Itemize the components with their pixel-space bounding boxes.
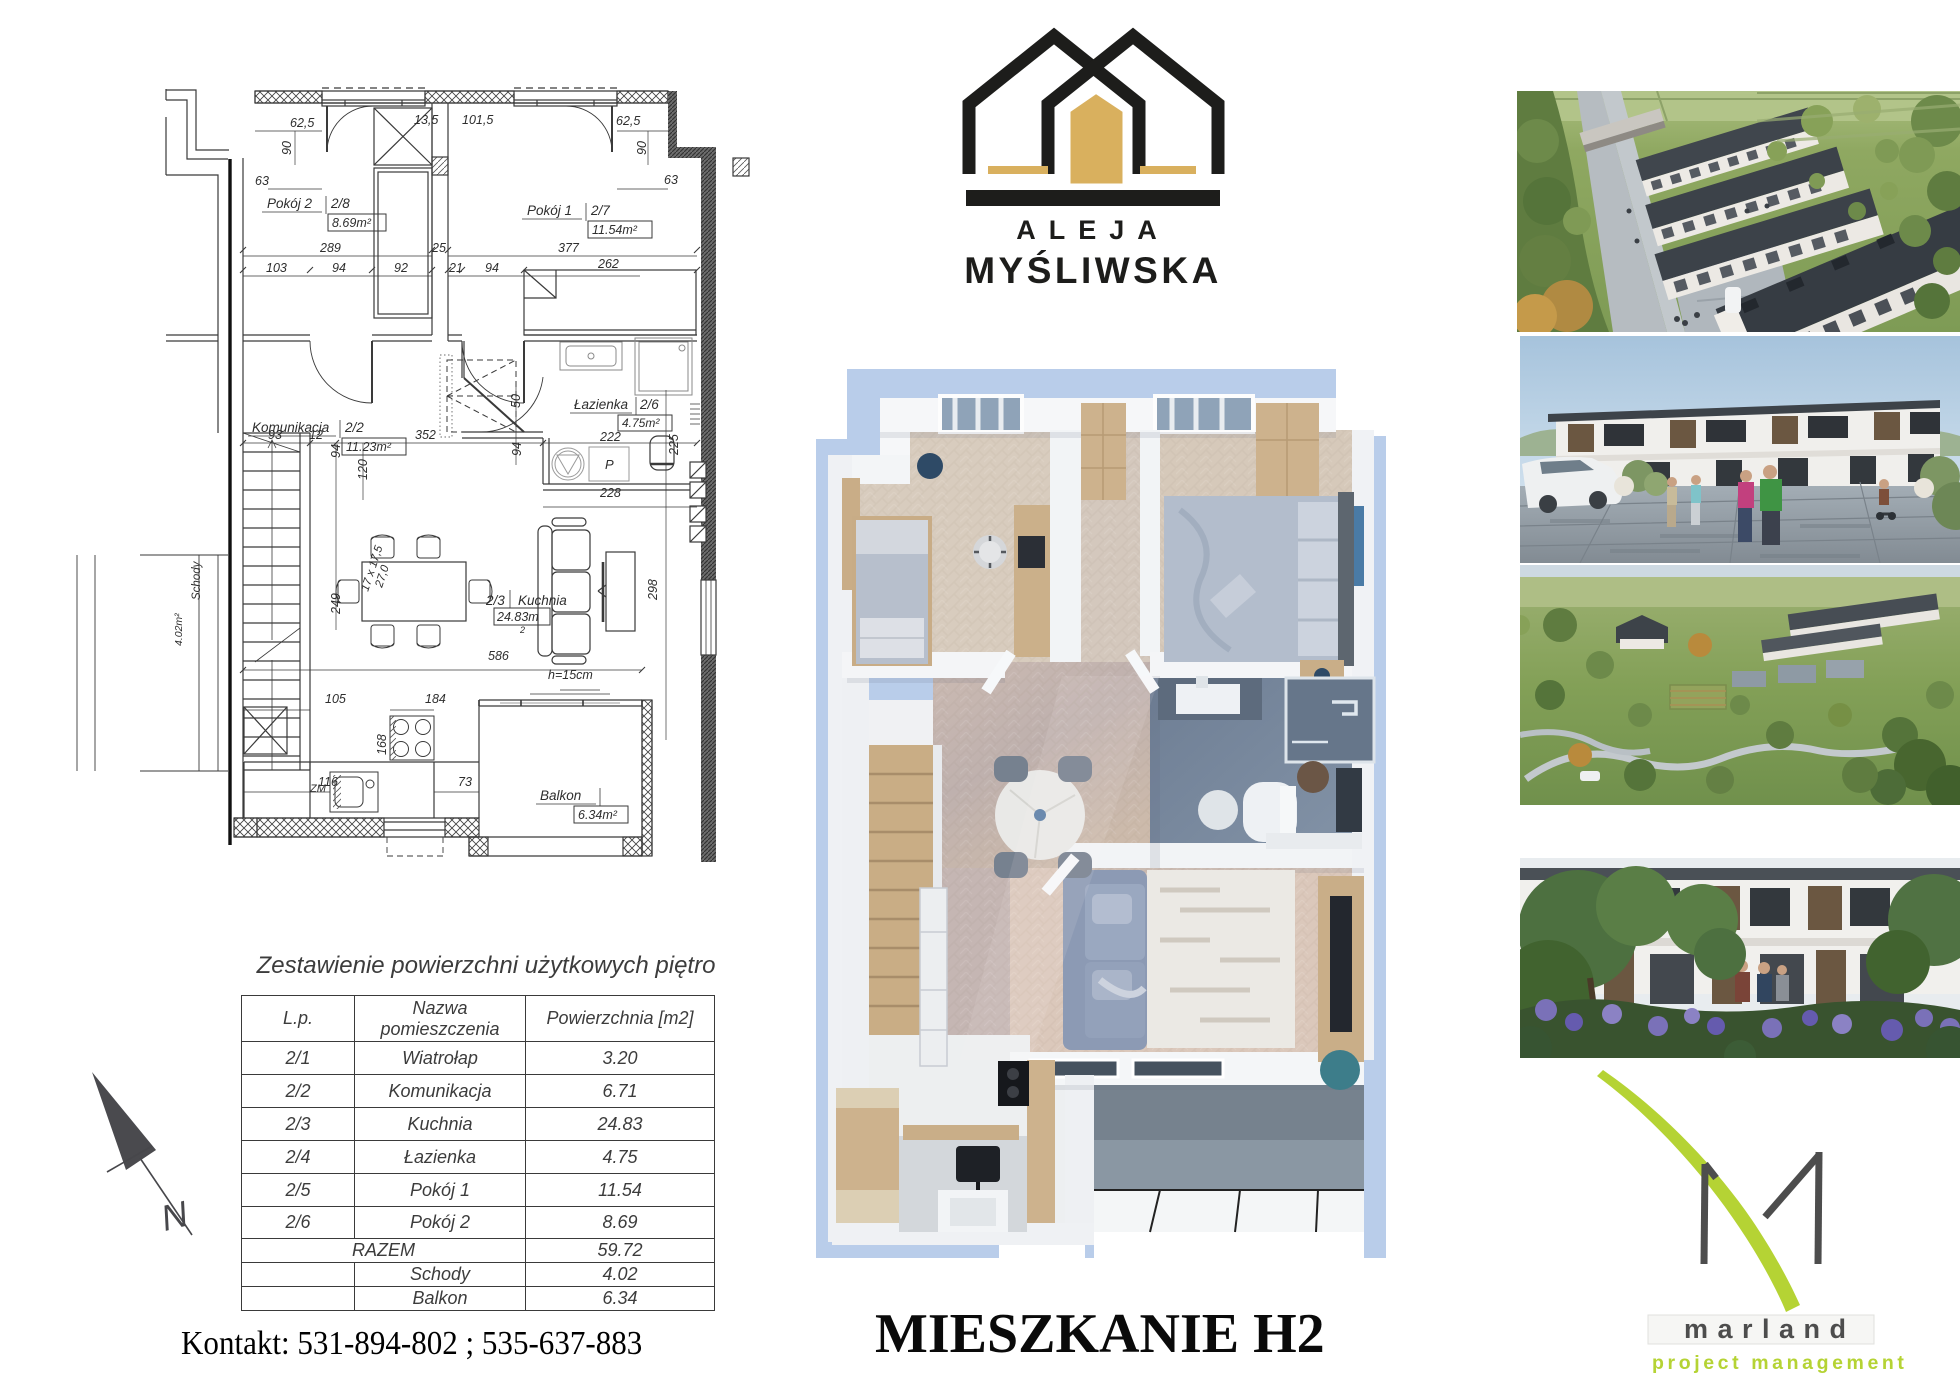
svg-text:225: 225	[667, 434, 681, 456]
svg-text:94: 94	[329, 444, 343, 458]
svg-text:262: 262	[597, 257, 619, 271]
svg-text:168: 168	[375, 734, 389, 755]
svg-text:2/3: 2/3	[485, 593, 505, 608]
svg-text:90: 90	[280, 141, 294, 155]
svg-text:MYŚLIWSKA: MYŚLIWSKA	[964, 249, 1222, 291]
svg-text:249: 249	[329, 593, 343, 615]
svg-text:94: 94	[510, 442, 524, 456]
svg-text:11.23m²: 11.23m²	[346, 440, 392, 454]
svg-text:2/6: 2/6	[639, 397, 659, 412]
svg-text:377: 377	[558, 241, 580, 255]
svg-text:2: 2	[519, 625, 525, 635]
svg-text:103: 103	[266, 261, 287, 275]
svg-text:4.75m²: 4.75m²	[622, 416, 660, 430]
svg-text:2/2: 2/2	[344, 420, 364, 435]
svg-text:4.02m²: 4.02m²	[173, 613, 185, 646]
svg-text:352: 352	[415, 428, 436, 442]
svg-text:11.54m²: 11.54m²	[592, 223, 638, 237]
svg-text:Kuchnia: Kuchnia	[518, 593, 567, 608]
svg-text:ALEJA: ALEJA	[1016, 215, 1170, 245]
svg-text:Komunikacja: Komunikacja	[252, 420, 330, 435]
svg-text:94: 94	[485, 261, 499, 275]
svg-text:184: 184	[425, 692, 446, 706]
svg-text:Pokój 1: Pokój 1	[527, 203, 572, 218]
svg-text:24.83m: 24.83m	[496, 610, 539, 624]
svg-text:Pokój 2: Pokój 2	[267, 196, 313, 211]
svg-text:101,5: 101,5	[462, 113, 493, 127]
svg-text:228: 228	[599, 486, 621, 500]
svg-text:Balkon: Balkon	[540, 788, 581, 803]
svg-text:P: P	[605, 457, 614, 472]
svg-text:project management: project management	[1652, 1352, 1908, 1374]
svg-text:586: 586	[488, 649, 509, 663]
svg-text:ZM: ZM	[309, 783, 327, 795]
svg-text:8.69m²: 8.69m²	[332, 216, 372, 230]
svg-text:Schody: Schody	[191, 560, 203, 600]
svg-text:marland: marland	[1684, 1314, 1856, 1344]
svg-text:h=15cm: h=15cm	[548, 668, 593, 682]
svg-text:289: 289	[319, 241, 341, 255]
svg-text:62,5: 62,5	[616, 114, 640, 128]
svg-text:90: 90	[635, 141, 649, 155]
svg-text:13,5: 13,5	[414, 113, 438, 127]
svg-text:63: 63	[664, 173, 678, 187]
svg-text:105: 105	[325, 692, 346, 706]
svg-text:50: 50	[509, 394, 523, 408]
svg-text:298: 298	[646, 579, 660, 601]
svg-text:2/8: 2/8	[330, 196, 350, 211]
svg-text:62,5: 62,5	[290, 116, 314, 130]
svg-text:94: 94	[332, 261, 346, 275]
svg-text:222: 222	[599, 430, 621, 444]
svg-text:Łazienka: Łazienka	[574, 397, 629, 412]
svg-text:N: N	[157, 1193, 193, 1239]
svg-text:2/7: 2/7	[590, 203, 610, 218]
svg-text:120: 120	[356, 459, 370, 480]
svg-text:6.34m²: 6.34m²	[578, 808, 618, 822]
svg-text:73: 73	[458, 775, 472, 789]
svg-text:92: 92	[394, 261, 408, 275]
svg-text:63: 63	[255, 174, 269, 188]
